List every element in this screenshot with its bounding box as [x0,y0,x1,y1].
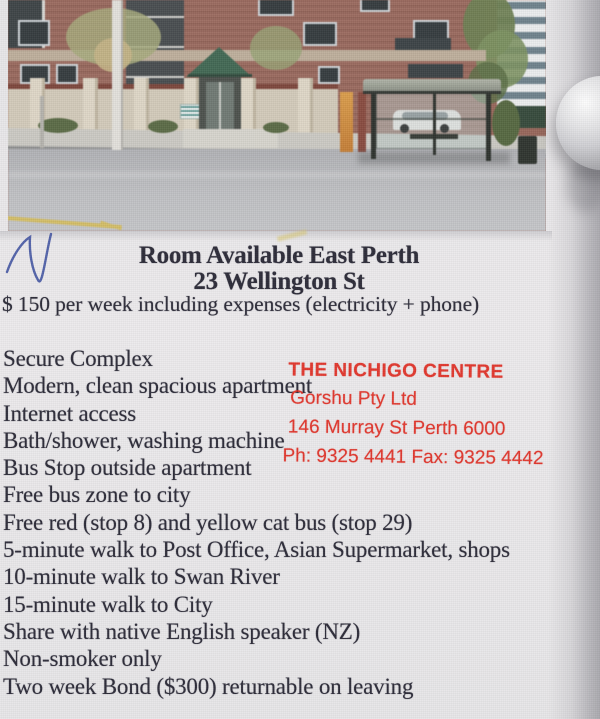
shelter-post [486,91,491,161]
bus-shelter-roof [363,79,501,94]
palm-tree [250,26,302,70]
stamp-phone-fax: Ph: 9325 4441 Fax: 9325 4442 [282,445,582,470]
car-wheel [400,124,409,133]
entrance-driveway [183,129,278,148]
stamp-name: THE NICHIGO CENTRE [288,359,583,384]
car-wheel [440,124,449,133]
building-window [303,22,337,46]
rubbish-bin [518,136,537,164]
feature-line: Two week Bond ($300) returnable on leavi… [3,673,598,700]
feature-line: 15-minute walk to City [3,591,598,618]
feature-line: Free red (stop 8) and yellow cat bus (st… [3,509,598,536]
stamp-address: 146 Murray St Perth 6000 [288,416,583,441]
sign-post [40,96,44,148]
building-window-band [395,38,451,50]
feature-line: 10-minute walk to Swan River [3,563,598,590]
building-window [318,66,340,84]
building-window [360,0,390,12]
hedge-shrub [263,122,289,133]
photographed-flyer-page: Room Available East Perth 23 Wellington … [0,0,600,719]
feature-line: Non-smoker only [3,645,598,672]
entrance-awning [186,47,252,77]
feature-line: Free bus zone to city [3,481,598,508]
roadside-shrub [492,100,520,146]
building-window [258,0,294,16]
apartment-photo [8,0,546,231]
stamp-company: Gorshu Pty Ltd [290,388,583,413]
nichigo-centre-stamp: THE NICHIGO CENTRE Gorshu Pty Ltd 146 Mu… [282,359,583,470]
orange-post [340,92,353,152]
red-post [358,92,366,152]
hedge-shrub [148,120,178,133]
flyer-title: Room Available East Perth [0,242,558,270]
flag-pole [112,0,123,150]
building-window [56,64,78,84]
feature-line: 5-minute walk to Post Office, Asian Supe… [3,536,598,563]
shelter-glass-rail [376,118,486,120]
feature-line: Share with native English speaker (NZ) [3,618,598,645]
flyer-price-line: $ 150 per week including expenses (elect… [2,292,562,317]
hedge-shrub [38,118,78,133]
building-window-band [408,64,463,78]
awning-underside [188,74,252,77]
apartment-photo-scene [8,0,546,231]
shelter-post [433,93,436,155]
building-window [18,20,50,46]
shelter-post [371,91,376,159]
street-light-band [8,172,546,178]
